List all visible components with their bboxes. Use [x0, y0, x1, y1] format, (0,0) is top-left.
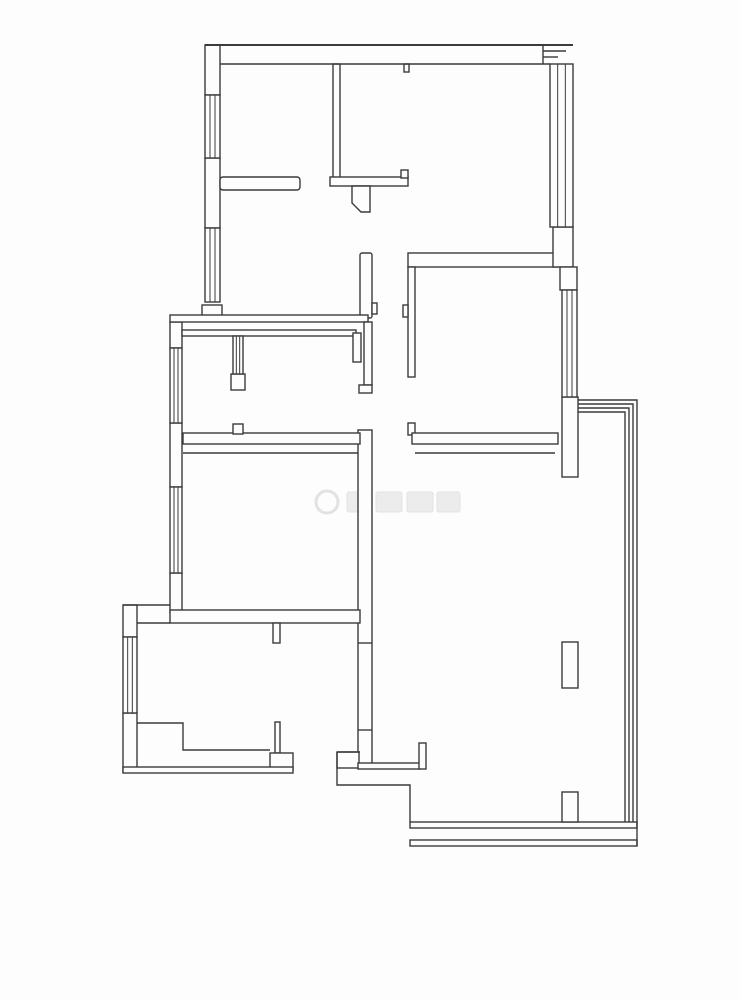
window-kitchen: [123, 637, 137, 713]
window-bedroom2: [562, 290, 577, 397]
wall-right-block-upper: [553, 227, 573, 267]
wall-dining-bottom-inner: [182, 330, 356, 336]
wall-left3-lower-block: [123, 713, 137, 772]
floor-plan-page: [0, 0, 740, 1000]
wall-left3-upper-block: [123, 605, 137, 637]
wall-living-bottom: [358, 763, 420, 769]
wall-bedroom1-bottom: [220, 177, 300, 190]
wall-dining-bottom-outer: [170, 315, 368, 322]
window-dining: [205, 228, 220, 302]
watermark-glyph: [376, 492, 402, 512]
wall-bath-bottom: [183, 433, 360, 444]
wall-left2-lower-block: [170, 573, 182, 613]
wall-left2-upper-block: [170, 322, 182, 348]
wall-kitchen-bottom-outer: [123, 767, 293, 773]
bath-divider-box: [231, 374, 245, 390]
wall-entry-step-block: [337, 752, 359, 768]
wall-bedroom2-left: [408, 267, 415, 377]
watermark-glyph: [437, 492, 460, 512]
door-stop-top: [404, 64, 409, 72]
window-bath: [170, 348, 182, 423]
door-hinge-hall: [372, 303, 377, 314]
wall-living-left: [358, 430, 372, 767]
wall-left-mid-block: [205, 158, 220, 228]
wall-bedroom2-bottom: [412, 433, 558, 444]
watermark-glyph: [407, 492, 433, 512]
door-jamb-living-bottom: [419, 743, 426, 769]
wall-left-top-block: [205, 45, 220, 95]
wall-corridor-left-foot: [359, 385, 372, 393]
wall-right-block-lower: [562, 397, 578, 477]
wall-balcony-stub: [562, 792, 578, 822]
window-bedroom1: [205, 95, 220, 158]
window-bigroom: [170, 487, 182, 573]
wall-hall-jamb: [360, 253, 372, 318]
wall-left2-mid-block: [170, 423, 182, 487]
wall-bedroom2-top: [408, 253, 558, 267]
door-jamb-entry: [275, 722, 280, 753]
door-hinge-bedroom2: [403, 305, 408, 317]
wall-hall-bar-hook: [401, 170, 408, 178]
wall-balcony-bottom-inner: [410, 822, 637, 828]
wall-bigroom-bottom: [170, 610, 360, 623]
wall-partition-top: [333, 64, 340, 178]
wall-corridor-left-upper: [364, 322, 372, 385]
wall-bath-bottom-notch: [233, 424, 243, 434]
floor-plan-canvas: [0, 0, 740, 1000]
window-right-top: [550, 64, 573, 227]
wall-balcony-bottom-outer: [410, 840, 637, 846]
wall-hall-bar: [330, 177, 408, 186]
wall-bath-jamb: [353, 333, 361, 362]
door-jamb-kitchen-top: [273, 623, 280, 643]
window-bath-divider: [233, 336, 243, 374]
column-balcony: [562, 642, 578, 688]
wall-right-block-mid: [560, 267, 577, 290]
